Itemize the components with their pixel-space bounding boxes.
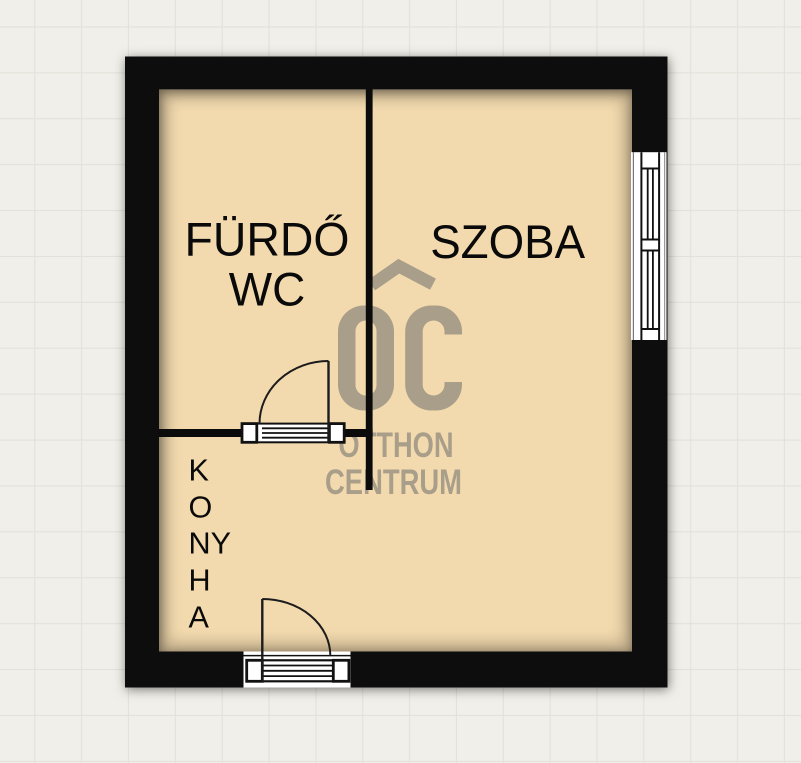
svg-text:O: O <box>189 490 213 524</box>
svg-text:FÜRDŐ: FÜRDŐ <box>185 214 350 267</box>
svg-text:NY: NY <box>189 526 232 560</box>
svg-text:A: A <box>189 600 210 634</box>
svg-text:CENTRUM: CENTRUM <box>325 463 462 502</box>
svg-text:H: H <box>189 563 211 597</box>
svg-text:K: K <box>189 453 210 487</box>
svg-text:SZOBA: SZOBA <box>430 216 585 269</box>
svg-text:WC: WC <box>229 264 306 317</box>
